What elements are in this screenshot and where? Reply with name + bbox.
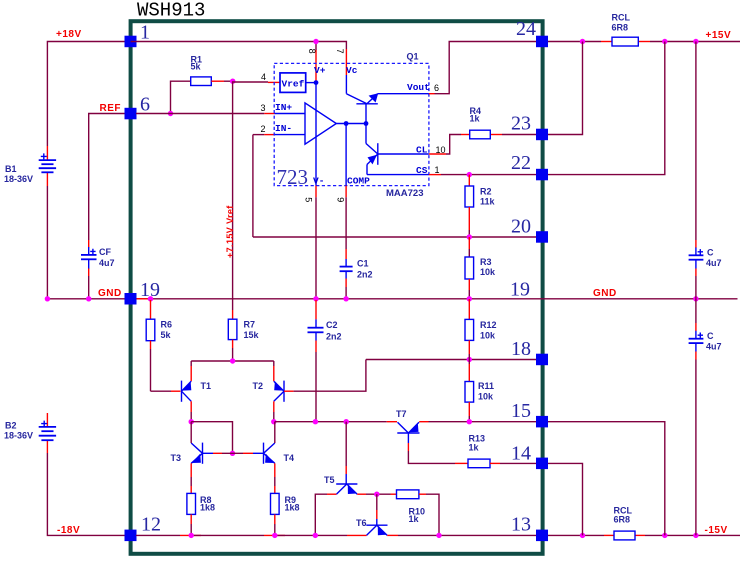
svg-text:4: 4 [261, 72, 266, 82]
svg-text:6R8: 6R8 [614, 515, 631, 525]
svg-text:11k: 11k [480, 197, 496, 207]
svg-text:18-36V: 18-36V [4, 431, 33, 441]
svg-text:V-: V- [313, 176, 324, 187]
svg-text:10: 10 [436, 145, 446, 155]
svg-text:4u7: 4u7 [706, 258, 722, 268]
svg-text:2n2: 2n2 [326, 332, 342, 342]
svg-text:6: 6 [434, 83, 439, 93]
svg-text:14: 14 [511, 443, 531, 465]
svg-text:10k: 10k [480, 267, 496, 277]
svg-text:T2: T2 [253, 381, 264, 391]
svg-text:18-36V: 18-36V [4, 174, 33, 184]
svg-text:B2: B2 [5, 421, 17, 431]
svg-text:15k: 15k [244, 330, 260, 340]
svg-text:R11: R11 [478, 381, 494, 391]
svg-text:6: 6 [140, 94, 150, 116]
svg-text:Vout: Vout [407, 82, 430, 93]
svg-text:T1: T1 [201, 381, 212, 391]
svg-text:R2: R2 [480, 187, 492, 197]
svg-text:T6: T6 [356, 518, 367, 528]
svg-text:RCL: RCL [612, 13, 631, 23]
svg-text:1k8: 1k8 [285, 503, 300, 513]
svg-text:1: 1 [435, 165, 440, 175]
svg-text:GND: GND [593, 288, 617, 299]
svg-text:MAA723: MAA723 [386, 188, 424, 199]
svg-text:IN-: IN- [275, 123, 292, 134]
svg-text:-18V: -18V [57, 525, 80, 536]
svg-text:Vref: Vref [282, 79, 305, 90]
svg-text:8: 8 [307, 49, 317, 54]
svg-text:CS: CS [416, 165, 428, 176]
svg-text:2: 2 [261, 124, 266, 134]
svg-text:1k: 1k [409, 514, 420, 524]
svg-text:Vc: Vc [346, 65, 358, 76]
svg-text:20: 20 [511, 216, 531, 238]
svg-text:7: 7 [335, 49, 345, 54]
svg-text:GND: GND [98, 288, 122, 299]
svg-text:Q1: Q1 [407, 52, 419, 62]
svg-text:19: 19 [510, 279, 530, 301]
svg-text:T7: T7 [396, 409, 407, 419]
svg-text:10k: 10k [480, 331, 496, 341]
svg-text:T4: T4 [284, 453, 295, 463]
svg-text:T3: T3 [171, 453, 182, 463]
svg-text:COMP: COMP [347, 176, 370, 187]
svg-text:1k: 1k [469, 443, 480, 453]
svg-text:R6: R6 [161, 320, 173, 330]
svg-text:24: 24 [516, 18, 536, 40]
svg-text:C2: C2 [326, 320, 338, 330]
svg-text:C: C [707, 331, 714, 341]
svg-text:5k: 5k [161, 330, 172, 340]
svg-text:4u7: 4u7 [706, 342, 722, 352]
svg-text:+15V: +15V [706, 30, 732, 41]
svg-text:T5: T5 [324, 475, 335, 485]
svg-text:CF: CF [99, 247, 111, 257]
svg-text:CL: CL [416, 145, 428, 156]
svg-text:2n2: 2n2 [357, 270, 373, 280]
svg-text:15: 15 [511, 400, 531, 422]
svg-text:C: C [707, 248, 714, 258]
svg-text:5k: 5k [191, 62, 202, 72]
svg-text:1k8: 1k8 [200, 503, 215, 513]
svg-text:V+: V+ [314, 65, 326, 76]
svg-text:9: 9 [336, 197, 346, 202]
svg-text:3: 3 [261, 103, 266, 113]
svg-text:1k: 1k [470, 114, 481, 124]
svg-text:22: 22 [511, 152, 531, 174]
svg-text:C1: C1 [357, 259, 369, 269]
svg-text:R12: R12 [480, 320, 497, 330]
svg-text:10k: 10k [478, 392, 494, 402]
svg-text:R3: R3 [480, 257, 492, 267]
svg-text:23: 23 [511, 113, 531, 135]
svg-text:723: 723 [277, 165, 309, 189]
svg-text:4u7: 4u7 [99, 258, 115, 268]
svg-text:+7.15V Vref: +7.15V Vref [225, 205, 235, 258]
svg-text:6R8: 6R8 [612, 23, 629, 33]
svg-text:13: 13 [511, 514, 531, 536]
svg-text:-15V: -15V [705, 525, 728, 536]
svg-text:R7: R7 [244, 320, 256, 330]
svg-text:WSH913: WSH913 [137, 0, 205, 22]
svg-text:B1: B1 [5, 164, 17, 174]
svg-text:1: 1 [140, 22, 150, 44]
svg-text:18: 18 [511, 338, 531, 360]
svg-text:12: 12 [141, 514, 161, 536]
svg-text:+18V: +18V [56, 29, 82, 40]
svg-text:5: 5 [303, 197, 313, 202]
svg-text:REF: REF [100, 103, 122, 114]
svg-text:IN+: IN+ [275, 102, 292, 113]
